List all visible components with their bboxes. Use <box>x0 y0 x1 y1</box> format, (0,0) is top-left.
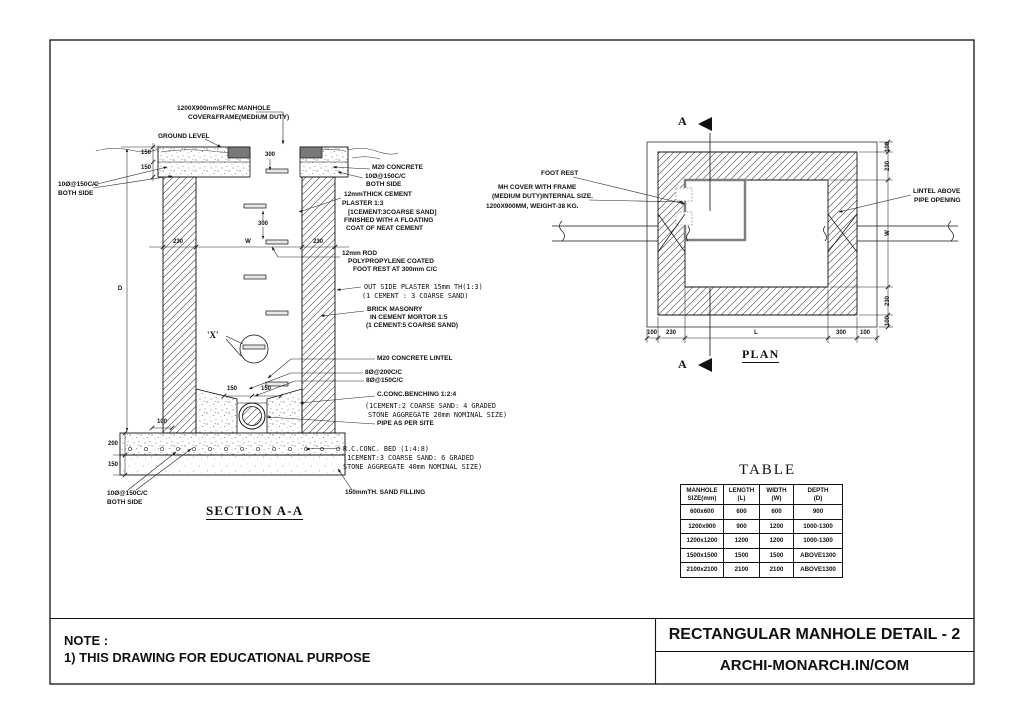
col-header-manhole-size: MANHOLESIZE(mm) <box>681 485 724 505</box>
dim-150-bench2: 150 <box>261 386 271 392</box>
bar200-note: 8Ø@200C/C <box>365 370 402 377</box>
plan-dim-230-bottom: 230 <box>885 296 891 306</box>
dim-100-bed: 100 <box>157 419 167 425</box>
mh-cover-plan <box>685 180 745 240</box>
section-marker-a-bottom: A <box>678 358 687 370</box>
rc-bed <box>120 433 345 455</box>
foot-rest-label: FOOT REST <box>541 171 578 178</box>
col-header-depth: DEPTH(D) <box>794 485 843 505</box>
brick-note3: (1 CEMENT:5 COARSE SAND) <box>366 323 458 330</box>
m20-bothside-note: BOTH SIDE <box>366 182 401 189</box>
note-line1: 1) THIS DRAWING FOR EDUCATIONAL PURPOSE <box>64 651 370 664</box>
section-title: SECTION A-A <box>206 504 303 520</box>
plaster-note1: 12mmTHICK CEMENT <box>344 192 412 199</box>
mh-cover-label1: MH COVER WITH FRAME <box>498 185 576 192</box>
mh-cover-label3: 1200X900MM, WEIGHT-38 KG. <box>486 204 578 211</box>
plaster-note2: PLASTER 1:3 <box>342 201 384 208</box>
cover-note-line1: 1200X900mmSFRC MANHOLE <box>177 106 271 113</box>
plaster-note5: COAT OF NEAT CEMENT <box>346 226 423 233</box>
x-detail-label: 'X' <box>207 331 219 340</box>
plan-dim-100-bottom: 100 <box>885 316 891 326</box>
plan-dim-l: L <box>754 330 758 336</box>
plan-dim-100-top: 100 <box>885 142 891 152</box>
sand-note: 150mmTH. SAND FILLING <box>345 490 425 497</box>
sand-filling <box>120 455 345 475</box>
brick-note1: BRICK MASONRY <box>367 307 422 314</box>
table-row: 1200x900900 12001000-1300 <box>681 519 843 534</box>
outside-plaster-note1: OUT SIDE PLASTER 15mm TH(1:3) <box>364 283 483 291</box>
section-marker-triangle-bottom <box>698 358 712 372</box>
sheet-title: RECTANGULAR MANHOLE DETAIL - 2 <box>655 627 974 643</box>
pipe-note: PIPE AS PER SITE <box>377 421 434 428</box>
dim-w: W <box>245 239 251 245</box>
col-header-width: WIDTH(W) <box>760 485 794 505</box>
section-marker-triangle-top <box>698 117 712 131</box>
table-title: TABLE <box>739 463 796 478</box>
rod-note3: FOOT REST AT 300mm C/C <box>353 267 437 274</box>
plan-dim-b100l: 100 <box>647 330 657 336</box>
dim-300-cover: 300 <box>265 152 275 158</box>
lintel-above-label1: LINTEL ABOVE <box>913 189 960 196</box>
bed-note1: R.C.CONC. BED (1:4:8) <box>343 445 429 453</box>
bottom-rebar-note2: BOTH SIDE <box>107 500 142 507</box>
table-row: 1200x12001200 12001000-1300 <box>681 534 843 549</box>
cover-note-line2: COVER&FRAME(MEDIUM DUTY) <box>188 115 289 122</box>
lintel-above-label2: PIPE OPENING <box>914 198 961 205</box>
left-rebar-note1: 10Ø@150C/C <box>58 182 92 189</box>
plan-dim-b300: 300 <box>836 330 846 336</box>
rod-note2: POLYPROPYLENE COATED <box>348 259 434 266</box>
plan-title: PLAN <box>742 348 779 363</box>
plan-dim-230-top: 230 <box>885 161 891 171</box>
plaster-note3: [1CEMENT:3COARSE SAND] <box>348 210 436 217</box>
foot-rest-plan <box>676 188 692 201</box>
dim-150-top2: 150 <box>141 165 151 171</box>
site-name: ARCHI-MONARCH.IN/COM <box>655 658 974 673</box>
outside-plaster-note2: (1 CEMENT : 3 COARSE SAND) <box>362 292 468 300</box>
note-title: NOTE : <box>64 634 108 647</box>
m20-concrete-note: M20 CONCRETE <box>372 165 423 172</box>
dim-depth-d: D <box>118 286 122 292</box>
ground-level-label: GROUND LEVEL <box>158 134 210 141</box>
cover-frame-right <box>300 147 322 158</box>
table-row: 1500x15001500 1500ABOVE1300 <box>681 548 843 563</box>
table-row: 600x600600 600900 <box>681 505 843 520</box>
brick-note2: IN CEMENT MORTOR 1:5 <box>370 315 448 322</box>
dim-300-spacing: 300 <box>257 221 269 227</box>
m20-rebar-note: 10Ø@150C/C <box>365 174 406 181</box>
dim-230-left: 230 <box>173 239 183 245</box>
section-marker-a-top: A <box>678 115 687 127</box>
dim-200-bed: 200 <box>108 441 118 447</box>
dim-230-right: 230 <box>313 239 323 245</box>
wall-right <box>302 177 335 433</box>
manhole-size-table: MANHOLESIZE(mm) LENGTH(L) WIDTH(W) DEPTH… <box>680 484 843 578</box>
drawing-linework <box>0 0 1024 724</box>
bottom-rebar-note1: 10Ø@150C/C <box>107 491 148 498</box>
bed-note3: STONE AGGREGATE 40mm NOMINAL SIZE) <box>343 463 482 471</box>
cover-frame-left <box>228 147 250 158</box>
table-row: 2100x21002100 2100ABOVE1300 <box>681 563 843 578</box>
benching-note2: (1CEMENT:2 COARSE SAND: 4 GRADED <box>365 402 496 410</box>
wall-left <box>163 177 196 433</box>
foot-rest-bars <box>243 169 288 386</box>
bar150-note: 8Ø@150C/C <box>366 378 403 385</box>
table-header-row: MANHOLESIZE(mm) LENGTH(L) WIDTH(W) DEPTH… <box>681 485 843 505</box>
plaster-note4: FINISHED WITH A FLOATING <box>344 218 433 225</box>
col-header-length: LENGTH(L) <box>724 485 760 505</box>
benching-note1: C.CONC.BENCHING 1:2:4 <box>377 392 456 399</box>
dim-150-bench1: 150 <box>227 386 237 392</box>
plan-dim-b230: 230 <box>666 330 676 336</box>
benching-note3: STONE AGGREGATE 20mm NOMINAL SIZE) <box>368 411 507 419</box>
dim-150-sand: 150 <box>108 462 118 468</box>
plan-dim-b100r: 100 <box>860 330 870 336</box>
dim-150-top1: 150 <box>141 150 151 156</box>
rod-note1: 12mm ROD <box>342 251 377 258</box>
plan-leaders <box>573 177 911 212</box>
bed-note2: (1CEMENT:3 COARSE SAND: 6 GRADED <box>343 454 474 462</box>
pipes-plan <box>552 221 958 241</box>
plan-dim-w: W <box>885 230 891 236</box>
drawing-sheet: 1200X900mmSFRC MANHOLE COVER&FRAME(MEDIU… <box>0 0 1024 724</box>
left-rebar-note2: BOTH SIDE <box>58 191 92 198</box>
lintel-note: M20 CONCRETE LINTEL <box>377 356 452 363</box>
mh-cover-label2: (MEDIUM DUTY)INTERNAL SIZE. <box>492 194 593 201</box>
